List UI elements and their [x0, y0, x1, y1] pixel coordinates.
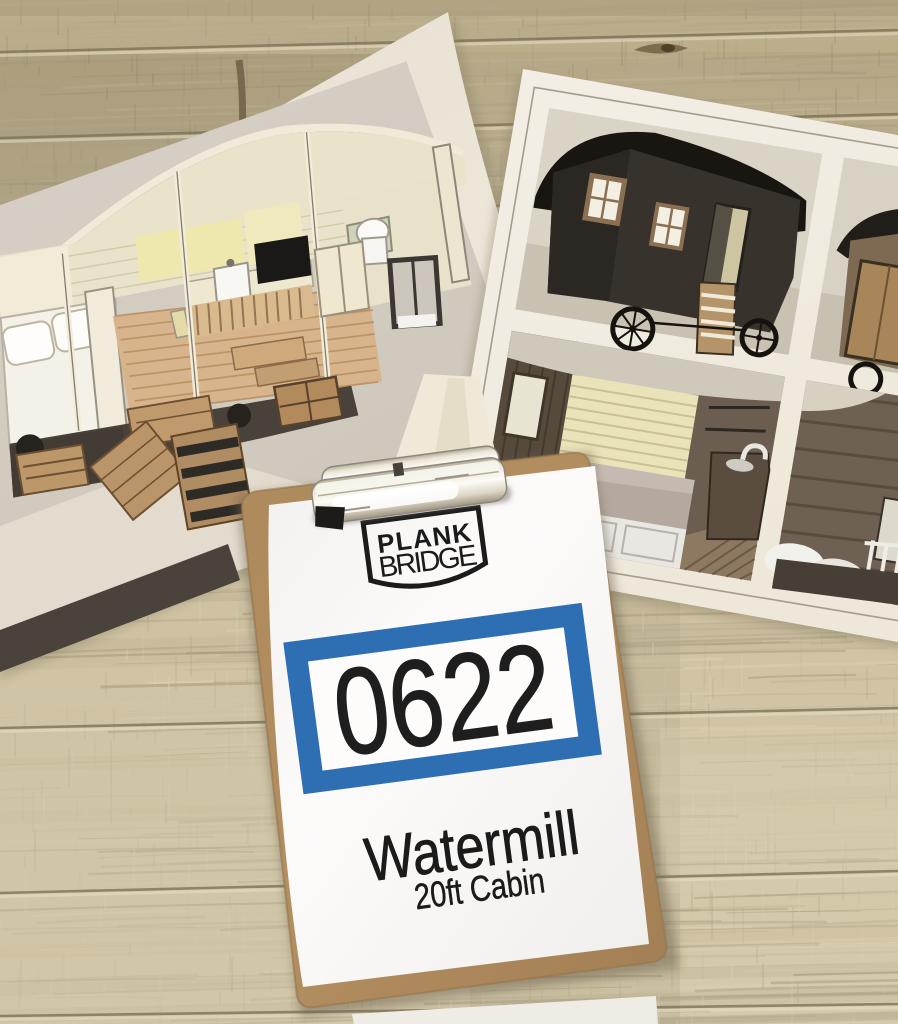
svg-text:0622: 0622: [326, 617, 561, 783]
